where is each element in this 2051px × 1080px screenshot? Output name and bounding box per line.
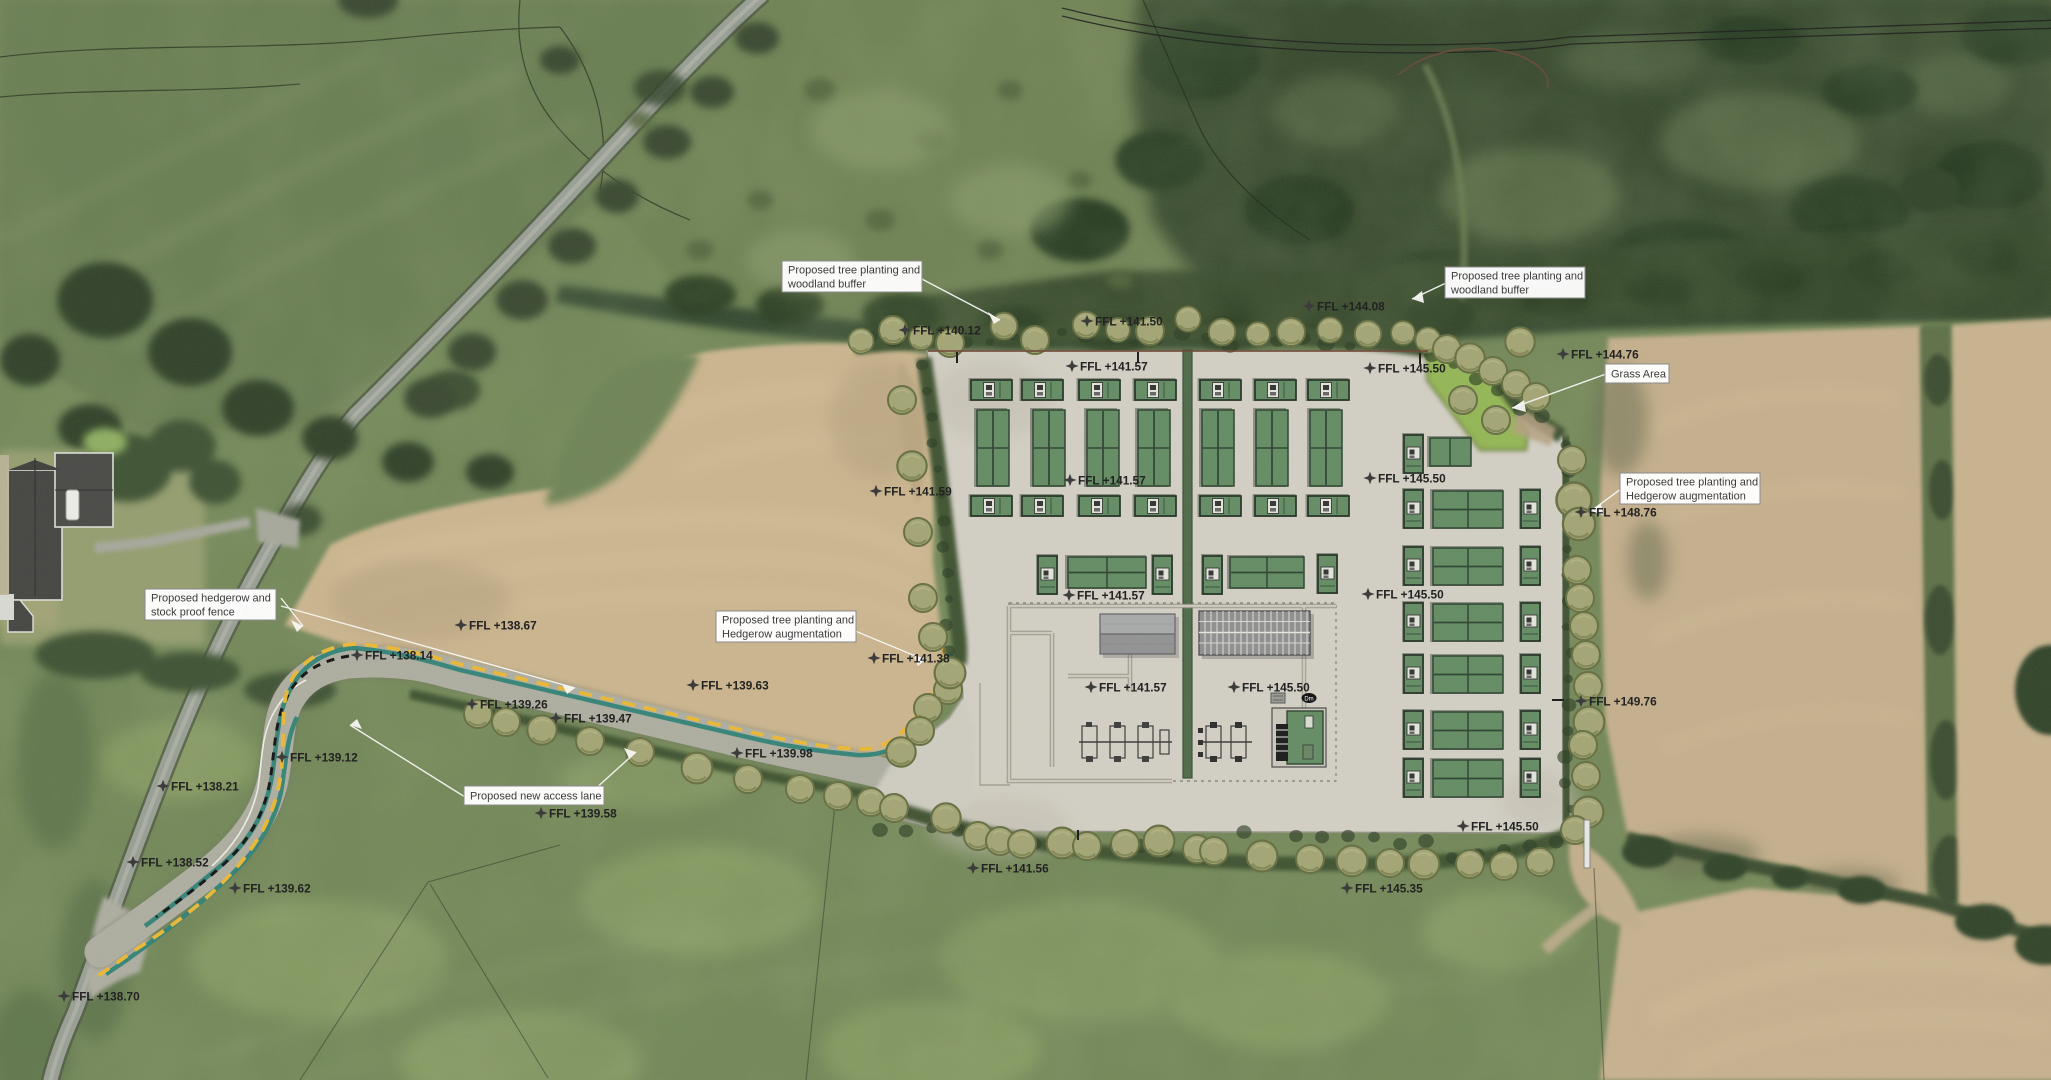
svg-text:stock proof fence: stock proof fence	[151, 607, 235, 619]
svg-text:FFL +149.76: FFL +149.76	[1589, 695, 1657, 709]
svg-text:FFL +145.50: FFL +145.50	[1378, 362, 1446, 376]
svg-text:FFL +141.38: FFL +141.38	[882, 652, 950, 666]
svg-text:FFL +145.50: FFL +145.50	[1376, 588, 1444, 602]
svg-text:FFL +141.57: FFL +141.57	[1099, 681, 1167, 695]
svg-text:FFL +139.98: FFL +139.98	[745, 747, 813, 761]
svg-text:Proposed tree planting and: Proposed tree planting and	[788, 265, 920, 277]
svg-text:FFL +139.47: FFL +139.47	[564, 712, 632, 726]
svg-text:FFL +141.57: FFL +141.57	[1078, 474, 1146, 488]
svg-text:woodland buffer: woodland buffer	[787, 279, 866, 291]
svg-text:FFL +141.57: FFL +141.57	[1080, 360, 1148, 374]
svg-text:FFL +148.76: FFL +148.76	[1589, 506, 1657, 520]
svg-text:FFL +145.50: FFL +145.50	[1471, 820, 1539, 834]
svg-text:FFL +138.21: FFL +138.21	[171, 780, 239, 794]
svg-text:Proposed tree planting and: Proposed tree planting and	[1626, 477, 1758, 489]
svg-text:woodland buffer: woodland buffer	[1450, 285, 1529, 297]
svg-text:FFL +139.26: FFL +139.26	[480, 698, 548, 712]
svg-text:Proposed tree planting and: Proposed tree planting and	[722, 615, 854, 627]
svg-text:Proposed hedgerow and: Proposed hedgerow and	[151, 593, 271, 605]
svg-text:FFL +138.67: FFL +138.67	[469, 619, 537, 633]
svg-text:FFL +145.35: FFL +145.35	[1355, 882, 1423, 896]
svg-text:FFL +138.70: FFL +138.70	[72, 990, 140, 1004]
svg-text:Hedgerow augmentation: Hedgerow augmentation	[722, 629, 842, 641]
svg-text:FFL +138.14: FFL +138.14	[365, 649, 433, 663]
svg-text:FFL +141.59: FFL +141.59	[884, 485, 952, 499]
svg-text:Grass Area: Grass Area	[1611, 369, 1667, 381]
svg-text:FFL +141.56: FFL +141.56	[981, 862, 1049, 876]
svg-text:FFL +139.63: FFL +139.63	[701, 679, 769, 693]
svg-text:FFL +145.50: FFL +145.50	[1378, 472, 1446, 486]
svg-text:FFL +139.12: FFL +139.12	[290, 751, 358, 765]
svg-text:FFL +140.12: FFL +140.12	[913, 324, 981, 338]
svg-text:FFL +141.50: FFL +141.50	[1095, 315, 1163, 329]
svg-text:Proposed new access lane: Proposed new access lane	[470, 791, 601, 803]
svg-text:FFL +145.50: FFL +145.50	[1242, 681, 1310, 695]
svg-text:FFL +138.52: FFL +138.52	[141, 856, 209, 870]
svg-text:Hedgerow augmentation: Hedgerow augmentation	[1626, 491, 1746, 503]
svg-text:Proposed tree planting and: Proposed tree planting and	[1451, 271, 1583, 283]
svg-text:FFL +139.62: FFL +139.62	[243, 882, 311, 896]
svg-text:FFL +141.57: FFL +141.57	[1077, 589, 1145, 603]
svg-text:FFL +139.58: FFL +139.58	[549, 807, 617, 821]
svg-text:FFL +144.76: FFL +144.76	[1571, 348, 1639, 362]
svg-text:FFL +144.08: FFL +144.08	[1317, 300, 1385, 314]
